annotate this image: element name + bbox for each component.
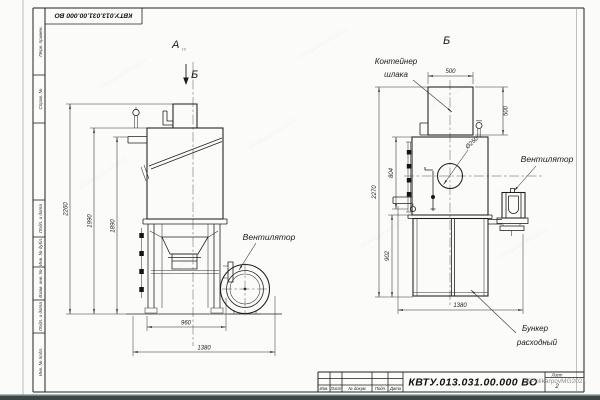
- view-a-dimensions: 2260 1990 1890 960 1380: [64, 104, 276, 356]
- stamp-vzam-inv: Взам. инв. №: [38, 269, 43, 297]
- tb-doc-number: КВТУ.013.031.00.000 ВО: [408, 377, 537, 389]
- dim-a-1890: 1890: [111, 219, 117, 233]
- dim-b-902: 902: [385, 250, 391, 261]
- top-stamp-doc-number: КВТУ.013.031.00.000 ВО: [54, 12, 133, 19]
- left-column-stamps: Перв. примен. Справ. № Подп. и дата Инв.…: [38, 12, 132, 377]
- watermark-tile: ©PolikarpovMG2021: [97, 56, 148, 92]
- fan-rear-drawing: [488, 189, 528, 237]
- view-a-section-mark: Б: [191, 69, 198, 81]
- dim-b-804: 804: [389, 167, 395, 178]
- stamp-podp-data-2: Подп. и дата: [38, 302, 43, 331]
- tb-col-data: Дата: [389, 386, 402, 391]
- view-a-label: А: [171, 39, 179, 51]
- watermark-tile: ©PolikarpovMG2021: [157, 246, 208, 282]
- stamp-sprav-no: Справ. №: [38, 89, 43, 110]
- stamp-perv-primen: Перв. примен.: [38, 26, 43, 57]
- watermark-tile: ©PolikarpovMG2021: [357, 216, 408, 252]
- tb-col-docnum: № докум.: [348, 386, 366, 391]
- slag-container-callout-line1: Контейнер: [375, 57, 418, 66]
- dim-b-500-right: 500: [504, 105, 510, 116]
- watermark-main: ©PolikarpovMG2021: [526, 377, 586, 385]
- hole-diameter-callout: Ø250: [464, 136, 480, 152]
- fan-volute-drawing: [221, 262, 271, 316]
- tb-col-podp: Подп.: [375, 386, 386, 391]
- stamp-inv-podl: Инв. № подл.: [38, 348, 43, 377]
- view-a-drawing: Б А 10: [126, 39, 296, 346]
- dim-a-1990: 1990: [88, 214, 94, 228]
- view-a-label-subscript: 10: [182, 47, 187, 52]
- fan-left-callout: Вентилятор: [243, 232, 296, 242]
- slag-container-callout-line2: шлака: [384, 70, 408, 79]
- dim-a-2260: 2260: [64, 202, 70, 217]
- dim-b-2270: 2270: [372, 185, 378, 200]
- stamp-inv-dubl: Инв. № дубл.: [38, 238, 43, 266]
- dim-a-1380: 1380: [197, 346, 211, 352]
- view-b-label: Б: [443, 35, 450, 47]
- fan-right-callout: Вентилятор: [521, 154, 574, 164]
- tb-col-izm: Изм.: [320, 386, 329, 391]
- watermark-tile: ©PolikarpovMG2021: [427, 76, 478, 112]
- watermarks: ©PolikarpovMG2021 ©PolikarpovMG2021 ©Pol…: [77, 26, 586, 385]
- hopper-callout-line1: Бункер: [522, 324, 549, 333]
- view-b-dimensions: 500 500 2270 804 902 1380: [372, 69, 523, 314]
- watermark-tile: ©PolikarpovMG2021: [297, 26, 348, 62]
- dim-b-500-top: 500: [445, 69, 456, 75]
- tb-sheet-label: Лист: [551, 373, 563, 378]
- hopper-callout-line2: расходный: [516, 338, 558, 347]
- watermark-tile: ©PolikarpovMG2021: [247, 116, 298, 152]
- drawing-sheet: Перв. примен. Справ. № Подп. и дата Инв.…: [0, 0, 600, 400]
- tb-col-list: Лист: [330, 386, 342, 391]
- dim-a-960: 960: [181, 321, 192, 327]
- stamp-podp-data-1: Подп. и дата: [38, 204, 43, 233]
- sheet-frame: [33, 8, 584, 392]
- dim-b-1380: 1380: [453, 303, 467, 309]
- watermark-tile: ©PolikarpovMG2021: [77, 156, 128, 192]
- assembly-drawing-svg: Перв. примен. Справ. № Подп. и дата Инв.…: [0, 0, 600, 400]
